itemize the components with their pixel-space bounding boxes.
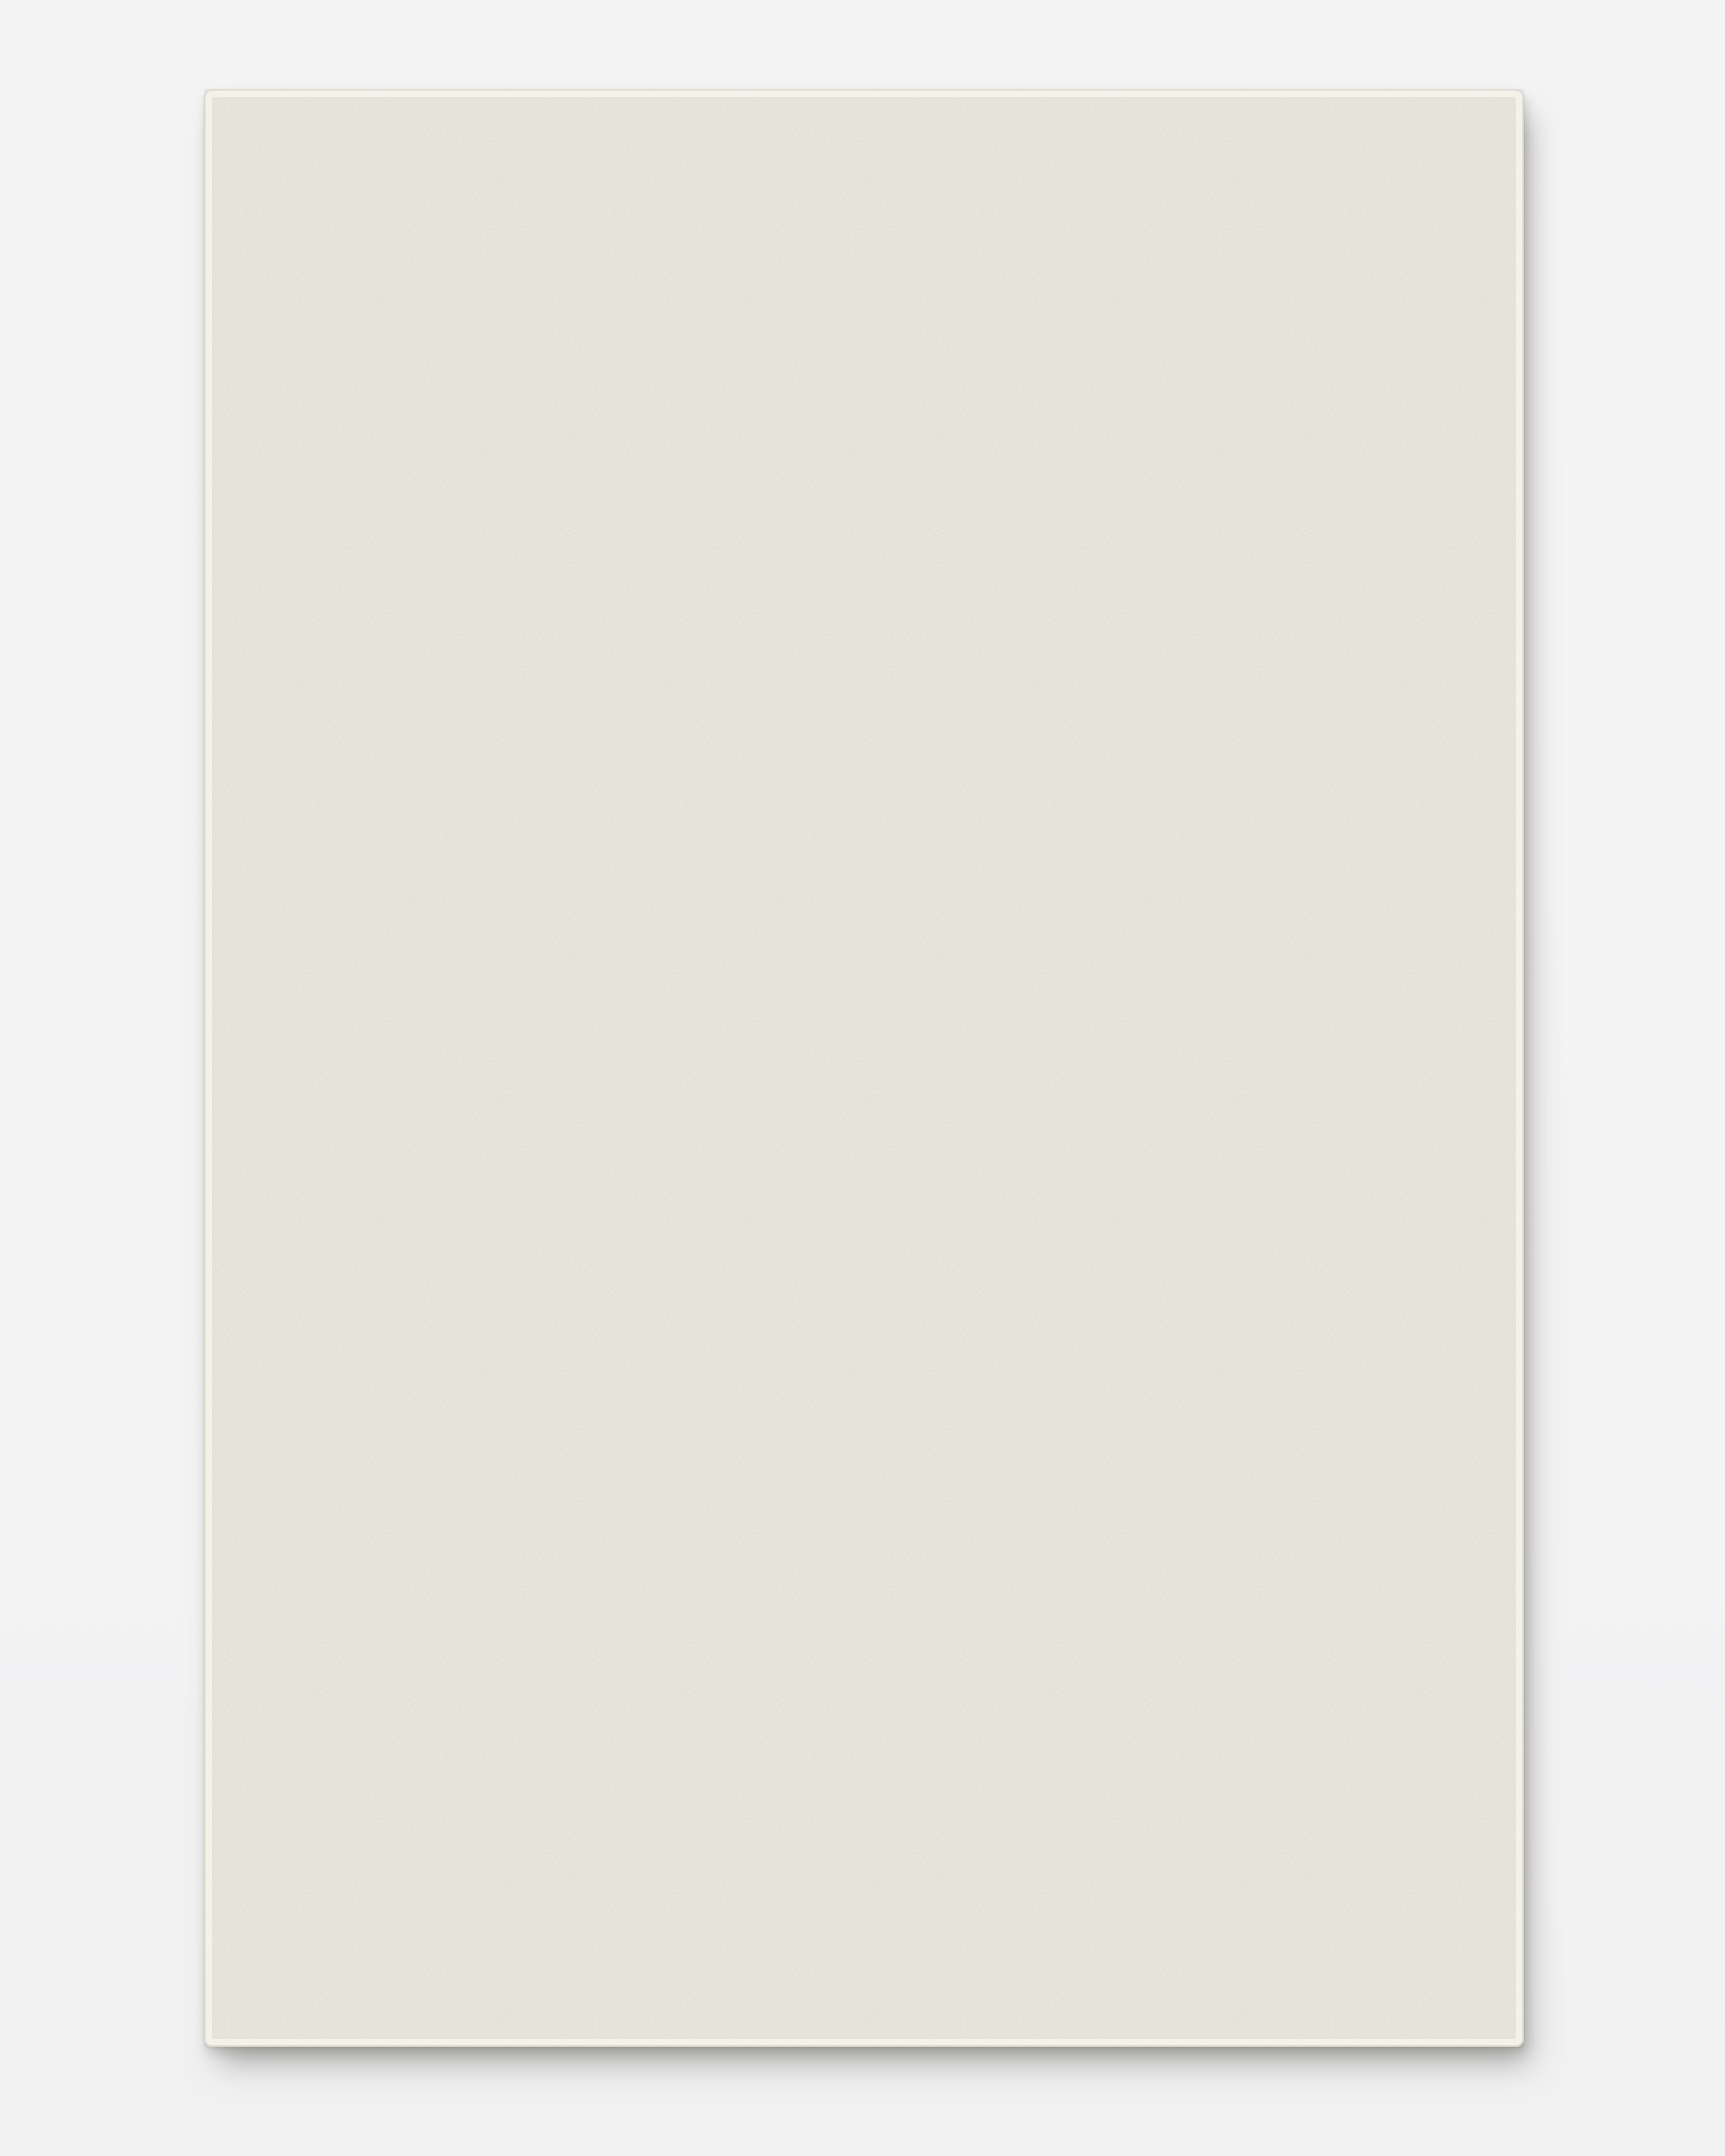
- rug-pattern-svg: [204, 89, 1524, 2047]
- rug-pattern-container: [204, 89, 1524, 2047]
- rug-product-image: [204, 89, 1524, 2047]
